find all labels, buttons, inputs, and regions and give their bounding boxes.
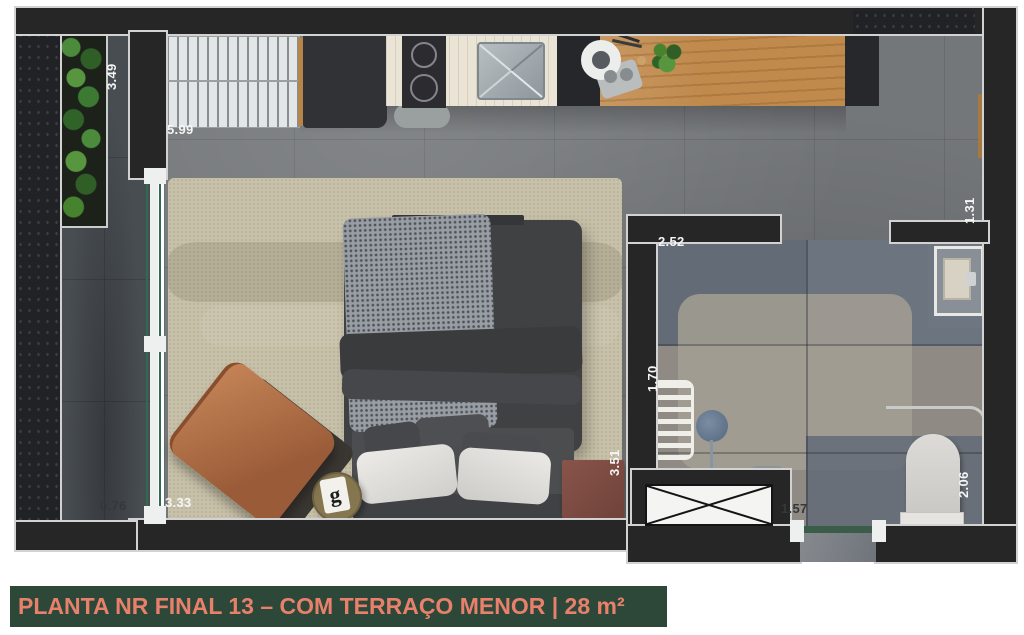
entry-threshold bbox=[800, 526, 876, 533]
wall-top-stone-column bbox=[853, 10, 975, 34]
wardrobe-rod bbox=[168, 80, 298, 82]
planter-box bbox=[54, 34, 108, 228]
dim-bedroom-bottom-wall: 3.33 bbox=[165, 495, 192, 510]
bathroom-tile-joint-v bbox=[806, 240, 808, 528]
side-table-card: g bbox=[319, 476, 351, 514]
wall-bottom-terrace bbox=[16, 522, 136, 550]
vanity-faucet bbox=[966, 272, 976, 286]
kitchen-sink bbox=[477, 42, 545, 100]
cork-dot bbox=[637, 56, 646, 65]
toilet-tank bbox=[900, 512, 964, 525]
glass-door-post-bottom bbox=[144, 506, 166, 524]
wall-left-stone bbox=[16, 8, 60, 550]
tall-cabinet bbox=[303, 34, 387, 128]
tray-bowl-1 bbox=[604, 70, 617, 83]
dim-bedroom-length: 3.51 bbox=[607, 428, 622, 476]
tray-bowl-2 bbox=[620, 68, 633, 81]
plan-title: PLANTA NR FINAL 13 – COM TERRAÇO MENOR |… bbox=[10, 593, 625, 620]
dim-right-wall-segment: 1.31 bbox=[962, 176, 977, 224]
plan-title-bar: PLANTA NR FINAL 13 – COM TERRAÇO MENOR |… bbox=[10, 586, 667, 627]
floor-plan: g bbox=[0, 0, 1024, 635]
service-shaft-box bbox=[645, 484, 773, 526]
dim-bathroom-inner-length: 1.70 bbox=[645, 348, 660, 392]
wall-bath-top-left bbox=[628, 216, 780, 242]
dim-bathroom-right-length: 2.06 bbox=[956, 444, 971, 498]
glass-door-post-top bbox=[144, 168, 166, 184]
dim-kitchen-wall: 5.99 bbox=[167, 122, 194, 137]
dim-bathroom-width: 2.52 bbox=[658, 234, 685, 249]
dim-terrace-width: 0.76 bbox=[100, 498, 127, 513]
cooktop-burner-2 bbox=[410, 74, 438, 102]
dim-entry-hall-width: 1.57 bbox=[781, 501, 808, 516]
duvet-fold-2 bbox=[342, 369, 583, 405]
entry-outside-floor bbox=[800, 530, 876, 562]
cabinet-right-dark bbox=[845, 34, 879, 106]
bathroom-tile-joint-h1 bbox=[654, 344, 986, 346]
entry-jamb-right bbox=[872, 520, 886, 542]
toilet-bowl bbox=[906, 434, 960, 520]
wall-bottom-right bbox=[876, 526, 1016, 562]
wardrobe bbox=[166, 36, 300, 128]
pillow-right-white bbox=[456, 447, 551, 505]
pillow-left-white bbox=[356, 443, 459, 505]
glass-door-post-middle bbox=[144, 336, 166, 352]
counter-plant bbox=[650, 40, 684, 74]
cooktop-burner-1 bbox=[411, 42, 437, 68]
wall-bottom-bath bbox=[628, 526, 800, 562]
wall-stub-terrace bbox=[130, 32, 166, 178]
dim-terrace-length: 3.49 bbox=[104, 38, 119, 90]
shaft-x-lines bbox=[647, 486, 771, 524]
sink-reflection-lines bbox=[479, 44, 543, 98]
wall-right bbox=[984, 8, 1016, 562]
wall-bath-top-right bbox=[891, 222, 988, 242]
wardrobe-wood-edge bbox=[298, 38, 303, 126]
towel-ladder bbox=[650, 380, 694, 460]
shower-column-head bbox=[696, 410, 728, 442]
wall-bottom-main bbox=[130, 520, 634, 550]
entry-jamb-left bbox=[790, 520, 804, 542]
side-table-monogram: g bbox=[327, 481, 342, 509]
